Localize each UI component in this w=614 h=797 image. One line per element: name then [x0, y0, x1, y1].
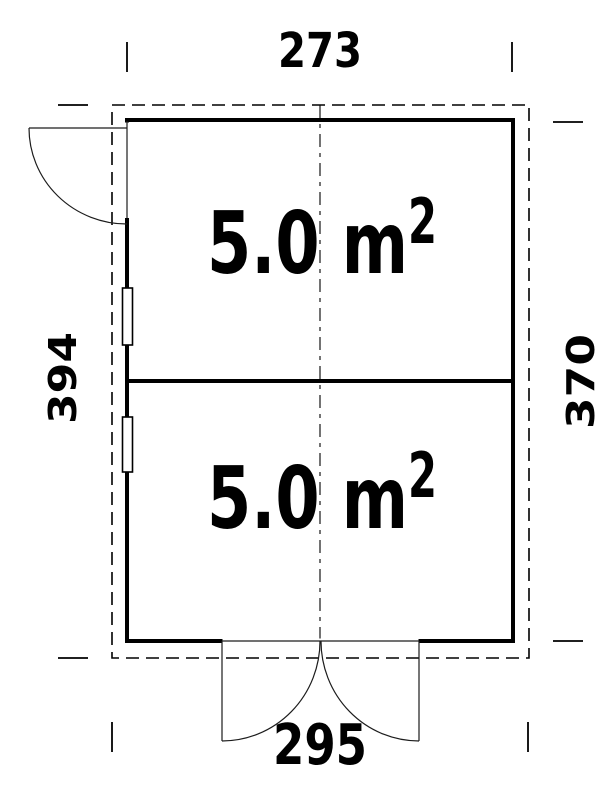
window-lower-room	[123, 417, 133, 472]
lower-room-area-superscript: 2	[408, 439, 437, 512]
dimension-label-bottom-width: 295	[273, 713, 367, 778]
floor-plan-drawing: 273 394 370 295 5.0 m 2 5.0 m 2	[0, 0, 614, 797]
dimension-label-right-height: 370	[559, 334, 603, 429]
dimension-label-left-height: 394	[41, 332, 85, 424]
dimension-label-top-width: 273	[278, 23, 362, 79]
upper-room-area-label: 5.0 m	[207, 194, 408, 294]
window-upper-room	[123, 288, 133, 345]
floor-plan-page: 273 394 370 295 5.0 m 2 5.0 m 2	[0, 0, 614, 797]
lower-room-area-label: 5.0 m	[207, 449, 408, 549]
upper-room-area-superscript: 2	[408, 185, 437, 258]
